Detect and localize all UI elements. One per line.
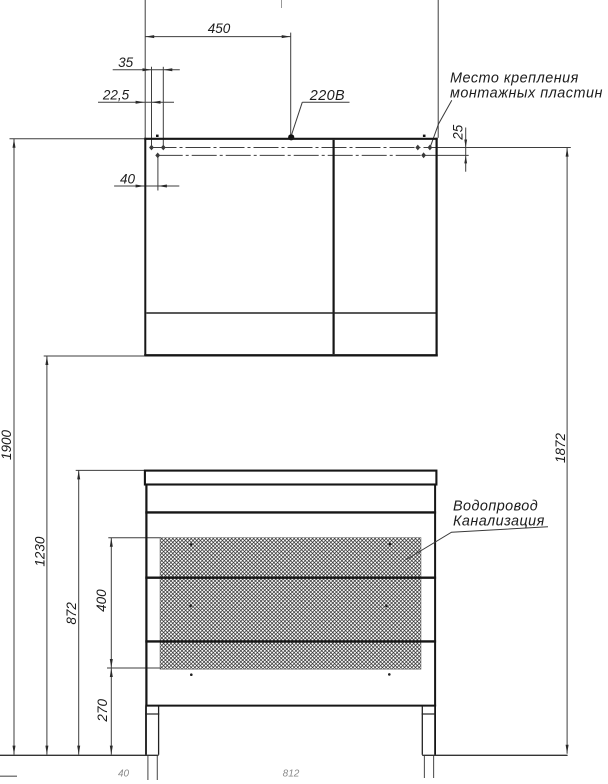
svg-text:1230: 1230 <box>32 536 47 567</box>
svg-text:872: 872 <box>64 602 79 625</box>
svg-text:Водопровод: Водопровод <box>453 498 538 514</box>
svg-text:монтажных пластин: монтажных пластин <box>450 86 603 102</box>
svg-text:Канализация: Канализация <box>453 513 545 529</box>
svg-text:450: 450 <box>208 21 231 36</box>
svg-text:40: 40 <box>120 171 136 186</box>
svg-text:35: 35 <box>118 55 134 70</box>
svg-text:812: 812 <box>283 769 300 780</box>
svg-text:40: 40 <box>118 769 130 780</box>
svg-text:270: 270 <box>95 699 110 723</box>
svg-text:22,5: 22,5 <box>102 88 130 103</box>
svg-text:400: 400 <box>94 589 109 612</box>
svg-text:1900: 1900 <box>0 429 14 460</box>
svg-text:25: 25 <box>451 124 466 141</box>
svg-text:Место крепления: Место крепления <box>450 71 579 87</box>
svg-text:1872: 1872 <box>553 432 568 463</box>
svg-text:220В: 220В <box>309 88 345 104</box>
